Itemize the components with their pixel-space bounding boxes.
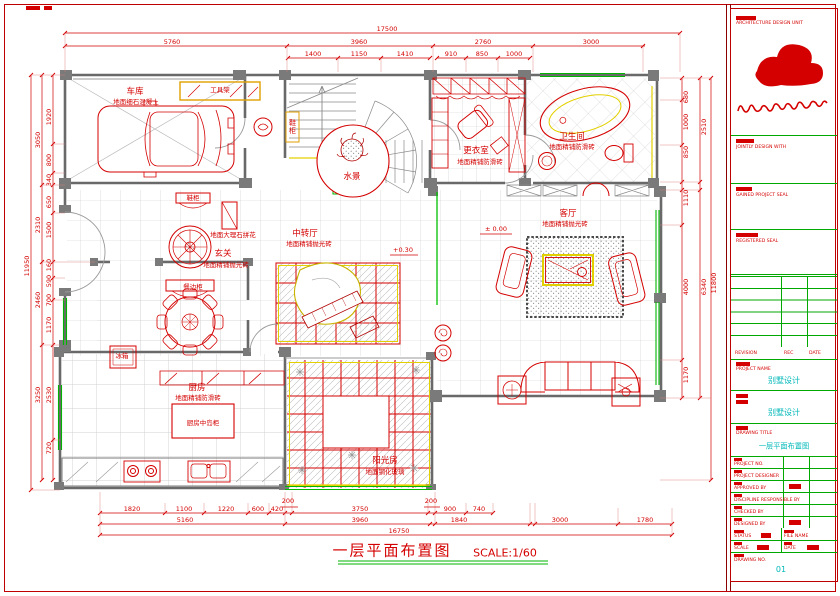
- drawing-no-value: 01: [776, 566, 786, 574]
- label-stamp: [736, 400, 748, 404]
- dim-right-sub-1: 1000: [683, 114, 690, 131]
- approved-by-label: APPROVED BY: [734, 487, 766, 492]
- drawing-title-label: DRAWING TITLE: [736, 432, 772, 437]
- dim-bottom-sub-1: 1100: [176, 506, 193, 513]
- dim-right-sub-3: 1110: [683, 190, 690, 207]
- dim-bottom-seg-4: 1780: [637, 517, 654, 524]
- floor-note-garage: 地面细石混凝土: [113, 99, 159, 106]
- date-col-label: DATE: [809, 352, 821, 357]
- jointly-design-label: JOINTLY DESIGN WITH: [736, 146, 786, 151]
- title-block: ARCHITECTURE DESIGN UNIT JOINTLY DESIGN …: [730, 8, 838, 582]
- dim-bottom-seg-2: 1840: [451, 517, 468, 524]
- label-kitchen-island: 厨房中岛柜: [187, 420, 220, 427]
- floor-note-sunroom: 地面钢化玻璃: [366, 469, 405, 476]
- status-label: STATUS: [734, 535, 751, 540]
- elevation-living: ± 0.00: [485, 226, 507, 233]
- dim-left-sub-6: 590: [46, 275, 53, 287]
- dim-right-sub-4: 4000: [683, 279, 690, 296]
- drawing-scale: SCALE:1/60: [473, 548, 537, 559]
- label-stamp: [734, 458, 742, 461]
- project-designer-label: PROJECT DESIGNER: [734, 475, 779, 480]
- date-label: DATE: [784, 547, 796, 552]
- dim-left-sub-3: 650: [46, 196, 53, 208]
- drawing-title-value: 一层平面布置图: [759, 442, 809, 449]
- room-label-garage: 车库: [126, 88, 143, 97]
- label-stamp: [734, 542, 742, 545]
- dim-left-sub-1: 800: [46, 154, 53, 166]
- drawing-sheet: 车库 地面细石混凝土 工具架 水景 更衣室 地面精铺防滑砖 卫生间 地面精铺防滑…: [0, 0, 840, 596]
- room-label-hall: 中转厅: [292, 230, 318, 239]
- label-stamp: [784, 530, 794, 533]
- dim-right-sub-0: 680: [683, 91, 690, 103]
- project-name-label: PROJECT NAME: [736, 368, 771, 373]
- label-sideboard: 餐边柜: [183, 284, 203, 291]
- dim-top-seg-2: 2760: [475, 39, 492, 46]
- room-label-foyer: 玄关: [214, 250, 231, 259]
- label-shoe-cabinet-foyer: 鞋柜: [187, 195, 200, 202]
- label-stamp: [784, 542, 792, 545]
- dim-top-sub-1: 1150: [351, 51, 368, 58]
- project-no-label: PROJECT NO.: [734, 463, 764, 468]
- dim-left-seg-3: 3250: [35, 387, 42, 404]
- dim-left-seg-0: 3050: [35, 132, 42, 149]
- designed-by-label: DESIGNED BY: [734, 523, 765, 528]
- label-fridge: 冰箱: [116, 353, 129, 360]
- dim-top-sub-4: 850: [476, 51, 488, 58]
- dim-top-sub-5: 1000: [506, 51, 523, 58]
- design-unit-label: ARCHITECTURE DESIGN UNIT: [736, 22, 803, 27]
- dim-bottom-sub-0: 1820: [124, 506, 141, 513]
- value-blob: [761, 533, 771, 538]
- room-label-bath: 卫生间: [559, 133, 585, 142]
- value-blob: [757, 545, 769, 550]
- dim-bottom-small-1: 200: [425, 498, 437, 505]
- dim-bottom-sub-4: 420: [271, 506, 283, 513]
- label-water-feature: 水景: [343, 173, 360, 182]
- dim-bottom-sub-3: 600: [252, 506, 264, 513]
- dim-top-seg-0: 5760: [164, 39, 181, 46]
- dim-bottom-seg-0: 5160: [177, 517, 194, 524]
- label-stamp: [736, 394, 748, 398]
- dim-top-overall: 17500: [377, 26, 398, 33]
- value-blob: [807, 545, 819, 550]
- dim-bottom-seg-3: 3000: [552, 517, 569, 524]
- dim-right-overall: 11800: [711, 273, 718, 294]
- checked-by-label: CHECKED BY: [734, 511, 763, 516]
- label-stamp: [734, 494, 742, 497]
- note-marble-medallion: 地面大理石拼花: [210, 232, 256, 239]
- label-stamp: [734, 470, 742, 473]
- drawing-caption: 一层平面布置图: [332, 544, 451, 559]
- piano-platform: [276, 263, 400, 344]
- dim-left-sub-8: 1170: [46, 317, 53, 334]
- floor-note-kitchen: 地面精铺防滑砖: [175, 395, 221, 402]
- revision-label: REVISION: [735, 352, 757, 357]
- dim-left-sub-2: 340: [46, 174, 53, 186]
- label-stamp: [736, 362, 750, 366]
- dim-bottom-seg-1: 3960: [352, 517, 369, 524]
- dim-left-sub-10: 720: [46, 442, 53, 454]
- floor-note-dressing: 地面精铺防滑砖: [457, 159, 503, 166]
- room-label-living: 客厅: [559, 210, 576, 219]
- sub-project-name-value: 别墅设计: [768, 409, 800, 417]
- dim-bottom-sub-6: 900: [444, 506, 456, 513]
- floor-note-bath: 地面精铺防滑砖: [549, 144, 595, 151]
- label-stamp: [734, 518, 742, 521]
- file-name-label: FILE NAME: [784, 535, 808, 540]
- label-stamp: [734, 482, 742, 485]
- room-label-kitchen: 厨房: [188, 384, 205, 393]
- dim-left-seg-1: 2310: [35, 217, 42, 234]
- label-shoe-cabinet-stairs: 鞋柜: [289, 119, 296, 135]
- caption-underline: [338, 561, 548, 564]
- calligraphy-script: [735, 97, 833, 117]
- label-tool-rack: 工具架: [210, 87, 230, 94]
- floor-note-hall: 地面精铺抛光砖: [286, 241, 332, 248]
- dim-bottom-overall: 16750: [389, 528, 410, 535]
- dim-left-sub-5: 160: [46, 259, 53, 271]
- dim-right-seg-0: 2510: [701, 119, 708, 136]
- company-logo: [743, 33, 825, 95]
- rec-label: REC: [784, 352, 793, 357]
- room-label-dressing: 更衣室: [463, 147, 489, 156]
- floor-note-foyer: 地面精铺抛光砖: [203, 262, 249, 269]
- project-name-value: 别墅设计: [768, 377, 800, 385]
- dim-bottom-small-0: 200: [282, 498, 294, 505]
- drawing-no-label: DRAWING NO.: [734, 559, 766, 564]
- label-stamp: [736, 139, 754, 143]
- signature-blob: [789, 520, 801, 525]
- dim-left-sub-0: 1920: [46, 109, 53, 126]
- signature-blob: [789, 484, 801, 489]
- dim-left-sub-4: 1500: [46, 222, 53, 239]
- label-stamp: [736, 426, 748, 430]
- revision-table: [731, 276, 837, 347]
- label-stamp: [736, 187, 752, 191]
- label-stamp: [734, 530, 744, 533]
- dim-top-sub-0: 1400: [305, 51, 322, 58]
- dim-right-sub-2: 850: [683, 146, 690, 158]
- dim-top-sub-3: 910: [445, 51, 457, 58]
- dim-right-seg-1: 6340: [701, 279, 708, 296]
- discipline-responsible-label: DISCIPLINE RESPONSIBLE BY: [734, 499, 800, 504]
- dim-top-seg-1: 3960: [351, 39, 368, 46]
- floor-note-living: 地面精铺抛光砖: [542, 221, 588, 228]
- dim-left-sub-9: 2530: [46, 387, 53, 404]
- elevation-hall: +0.30: [393, 247, 413, 254]
- label-stamp: [736, 233, 758, 237]
- dim-right-sub-5: 1170: [683, 367, 690, 384]
- label-stamp: [734, 554, 744, 557]
- dim-bottom-sub-2: 1220: [218, 506, 235, 513]
- room-label-sunroom: 阳光房: [372, 457, 398, 466]
- dim-bottom-sub-5: 3750: [352, 506, 369, 513]
- label-stamp: [734, 506, 742, 509]
- dim-top-seg-3: 3000: [583, 39, 600, 46]
- scale-label: SCALE: [734, 547, 749, 552]
- dim-left-overall: 11950: [24, 256, 31, 277]
- sunroom-glass-floor: [287, 360, 432, 488]
- label-stamp: [736, 16, 756, 20]
- dim-top-sub-2: 1410: [397, 51, 414, 58]
- registered-seal-label: REGISTERED SEAL: [736, 240, 778, 245]
- dim-left-sub-7: 700: [46, 294, 53, 306]
- dim-bottom-sub-7: 740: [473, 506, 485, 513]
- project-seal-label: GAINED PROJECT SEAL: [736, 194, 788, 199]
- dim-left-seg-2: 2460: [35, 292, 42, 309]
